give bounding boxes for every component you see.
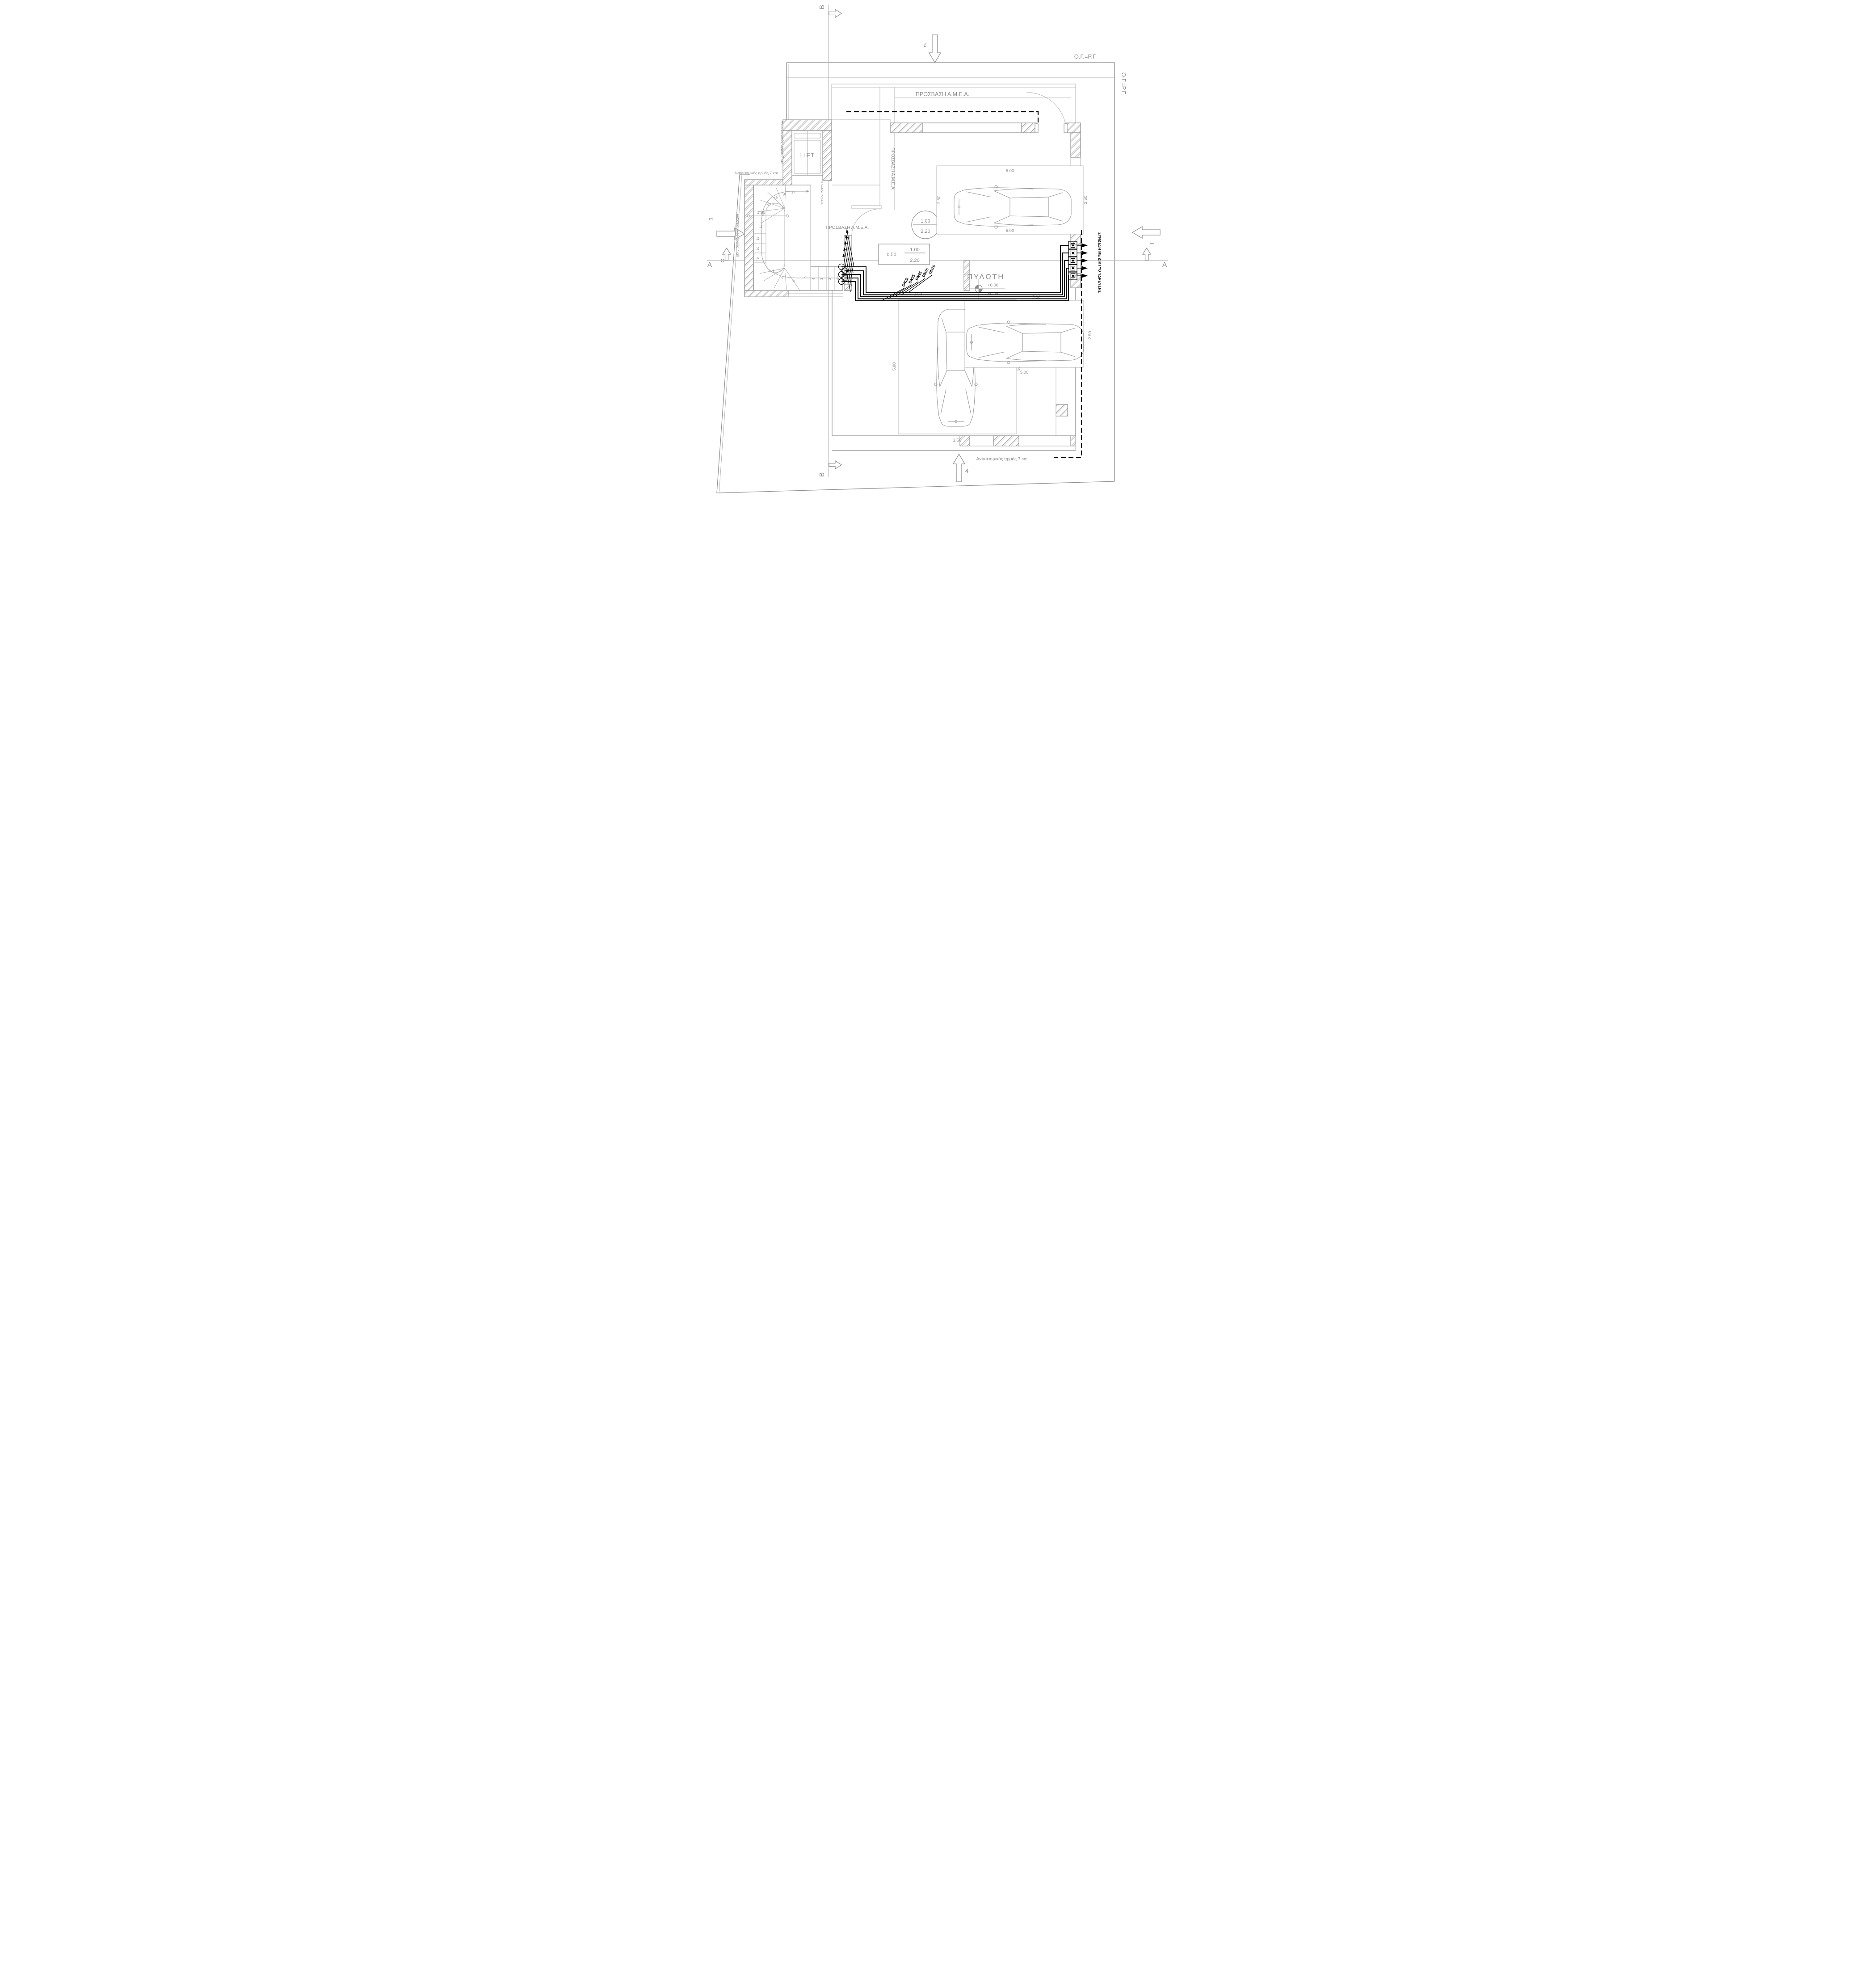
dim-top-parking-length-bottom: 5.00 [1006,228,1014,233]
water-meter-4 [1068,264,1087,272]
view-label-1: 1 [1149,242,1156,245]
step-2: 2 [828,278,832,280]
step-9: 9 [756,257,760,259]
dim-br-parking-width-right: 2.50 [1088,331,1093,340]
view-arrow-2 [929,35,941,63]
parking-space-bottom-right [965,300,1084,367]
section-label-a-left: A [707,261,712,269]
door-size-tag-circle [912,211,939,239]
dim-top-parking-length-top: 5.00 [1006,168,1014,173]
step-3: 3 [820,278,824,280]
seismic-joint-label-stair-left: Αντισεισμικός αρμός 7 cm [736,214,740,257]
door-height: 2.20 [921,229,930,234]
seismic-joint-label-lift: Αντισεισμικός αρμός 7 cm [780,121,785,164]
view-label-2: 2 [923,42,926,48]
view-arrow-4 [953,454,965,482]
step-10: 10 [756,247,760,250]
step-16: 16 [782,192,787,196]
setback-label-right: Ο.Γ.=Ρ.Γ. [1120,72,1127,95]
accessible-route-dashed [846,112,1038,124]
accessible-route-label-vertical: ΠΡΟΣΒΑΣΗ Α.Μ.Ε.Α. [890,147,895,190]
step-4: 4 [812,278,816,280]
door-width: 1.00 [921,219,930,224]
step-15: 15 [774,195,778,200]
lift-label: LIFT [800,152,815,159]
pilotis-label: ΠΥΛΩΤΗ [967,273,1005,281]
water-supply-pipes [839,230,1069,301]
water-network-connection-label: ΣΥΝΔΕΣΗ ΜΕ ΔΙΚΤΥΟ ΥΔΡΕΥΣΗΣ [1098,232,1102,293]
dim-bl-parking-length-left: 5.00 [892,362,897,371]
side-clearance: 0.50 [887,252,896,257]
step-11: 11 [756,237,760,240]
view-label-3: 3 [708,217,715,220]
level-marker [969,279,1005,299]
step-5: 5 [803,276,808,279]
step-17: 17 [791,190,795,194]
dim-top-parking-width-right: 2.50 [1083,196,1088,204]
seismic-joint-label-bottom: Αντισεισμικός αρμός 7 cm [976,456,1028,462]
step-8: 8 [772,269,775,273]
seismic-joint-label-stair-top: Αντισεισμικός αρμός 7 cm [734,171,778,175]
water-meter-2 [1068,249,1087,257]
step-12: 12 [759,224,763,228]
section-label-b-bottom: B [818,472,826,477]
accessible-route-label-small: ΠΡΟΣΒΑΣΗ Α.Μ.Ε.Α. [820,181,823,205]
dim-br-parking-length-bottom: 5.00 [1020,370,1029,375]
setback-label-top: Ο.Γ.=Ρ.Γ. [1074,53,1097,60]
section-label-b-top: B [818,5,826,9]
door-width-2: 1.00 [910,247,919,253]
floor-plan-sheet: Ο.Γ.=Ρ.Γ. Ο.Γ.=Ρ.Γ. B B A A 2 3 1 4 [703,0,1173,495]
dim-bl-parking-width-bottom: 2.50 [953,438,962,443]
step-14: 14 [766,202,771,207]
pilotis-floor-plan: Ο.Γ.=Ρ.Γ. Ο.Γ.=Ρ.Γ. B B A A 2 3 1 4 [703,0,1173,495]
step-6: 6 [791,279,796,283]
accessible-route-label-door: ΠΡΟΣΒΑΣΗ Α.Μ.Ε.Α. [826,225,869,230]
level-value-top: +0.00 [988,283,998,288]
dn25-label-5: DN25 [928,264,936,275]
level-value-bottom: +0.05 [988,291,998,296]
section-line-B [829,4,841,477]
door-size-tag-box [879,244,930,265]
door-height-2: 2.20 [910,258,919,263]
dim-top-parking-width-left: 2.50 [937,196,942,204]
section-label-a-right: A [1162,261,1167,269]
accessible-route-label-top: ΠΡΟΣΒΑΣΗ Α.Μ.Ε.Α. [916,91,969,97]
view-label-4: 4 [965,467,968,474]
parking-space-top [937,166,1083,234]
view-arrow-1 [1132,227,1160,238]
